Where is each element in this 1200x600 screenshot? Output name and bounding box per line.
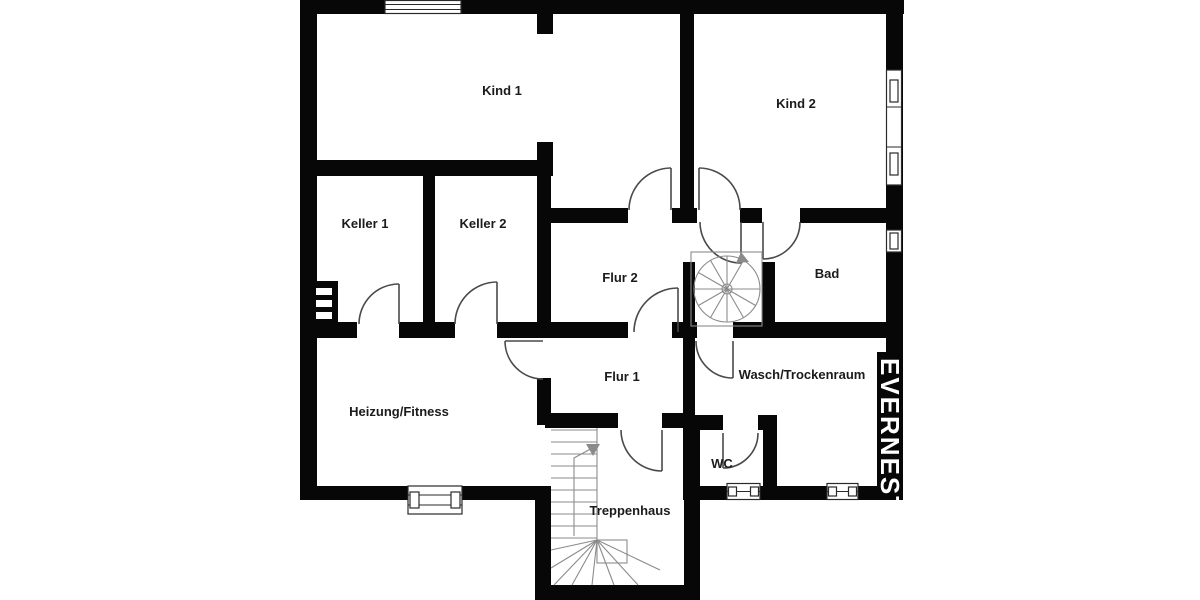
- wall-wc-right: [763, 415, 777, 486]
- wall-treppenhaus-top-2: [662, 413, 684, 428]
- wall-bottom-right: [683, 486, 903, 500]
- wall-pillar-mid: [537, 142, 553, 162]
- room-label-heizung-fitness: Heizung/Fitness: [349, 404, 449, 419]
- evernest-watermark: EVERNEST: [875, 352, 905, 514]
- wall-keller-top: [317, 160, 553, 176]
- wall-heizung-flur1: [537, 378, 551, 425]
- wall-stairbox-left: [535, 486, 551, 600]
- wall-mid-band-1: [551, 208, 628, 223]
- wall-keller-divider: [423, 176, 435, 338]
- room-label-wc: WC: [711, 456, 733, 471]
- evernest-watermark-text: EVERNEST: [875, 358, 905, 514]
- wall-low-band-3: [497, 322, 628, 338]
- room-label-flur-1: Flur 1: [604, 369, 639, 384]
- window-right-small: [887, 230, 902, 252]
- wall-low-band-5: [733, 322, 886, 338]
- wall-mid-band-3: [740, 208, 762, 223]
- window-right-large: [887, 70, 902, 185]
- wall-pillar-top: [537, 14, 553, 34]
- room-label-treppenhaus: Treppenhaus: [590, 503, 671, 518]
- wall-stairbox-bottom: [535, 585, 700, 600]
- wall-mid-band-2: [672, 208, 697, 223]
- wall-low-band-2: [399, 322, 455, 338]
- wall-wc-top-1: [695, 415, 723, 430]
- wall-mid-band-4: [800, 208, 886, 223]
- chimney-block: [306, 281, 338, 323]
- wall-flur1-wasch: [683, 338, 695, 486]
- wall-treppenhaus-top-1: [545, 413, 618, 428]
- wall-spiral-left: [683, 262, 695, 338]
- room-label-keller-1: Keller 1: [342, 216, 389, 231]
- window-bottom-heizung: [408, 486, 462, 514]
- window-bottom-wc: [727, 484, 760, 500]
- floor-plan: Kind 1 Kind 2 Keller 1 Keller 2 Flur 2 B…: [0, 0, 1200, 600]
- wall-left: [300, 0, 317, 500]
- window-top: [385, 1, 461, 14]
- window-bottom-wasch: [827, 484, 858, 500]
- wall-spiral-right: [762, 262, 775, 338]
- room-label-bad: Bad: [815, 266, 840, 281]
- room-label-kind-2: Kind 2: [776, 96, 816, 111]
- wall-keller2-flur2: [537, 160, 551, 338]
- room-label-flur-2: Flur 2: [602, 270, 637, 285]
- room-label-kind-1: Kind 1: [482, 83, 522, 98]
- wall-kind1-kind2: [680, 14, 694, 210]
- room-label-keller-2: Keller 2: [460, 216, 507, 231]
- room-label-wasch-trockenraum: Wasch/Trockenraum: [739, 367, 866, 382]
- wall-low-band-1: [306, 322, 357, 338]
